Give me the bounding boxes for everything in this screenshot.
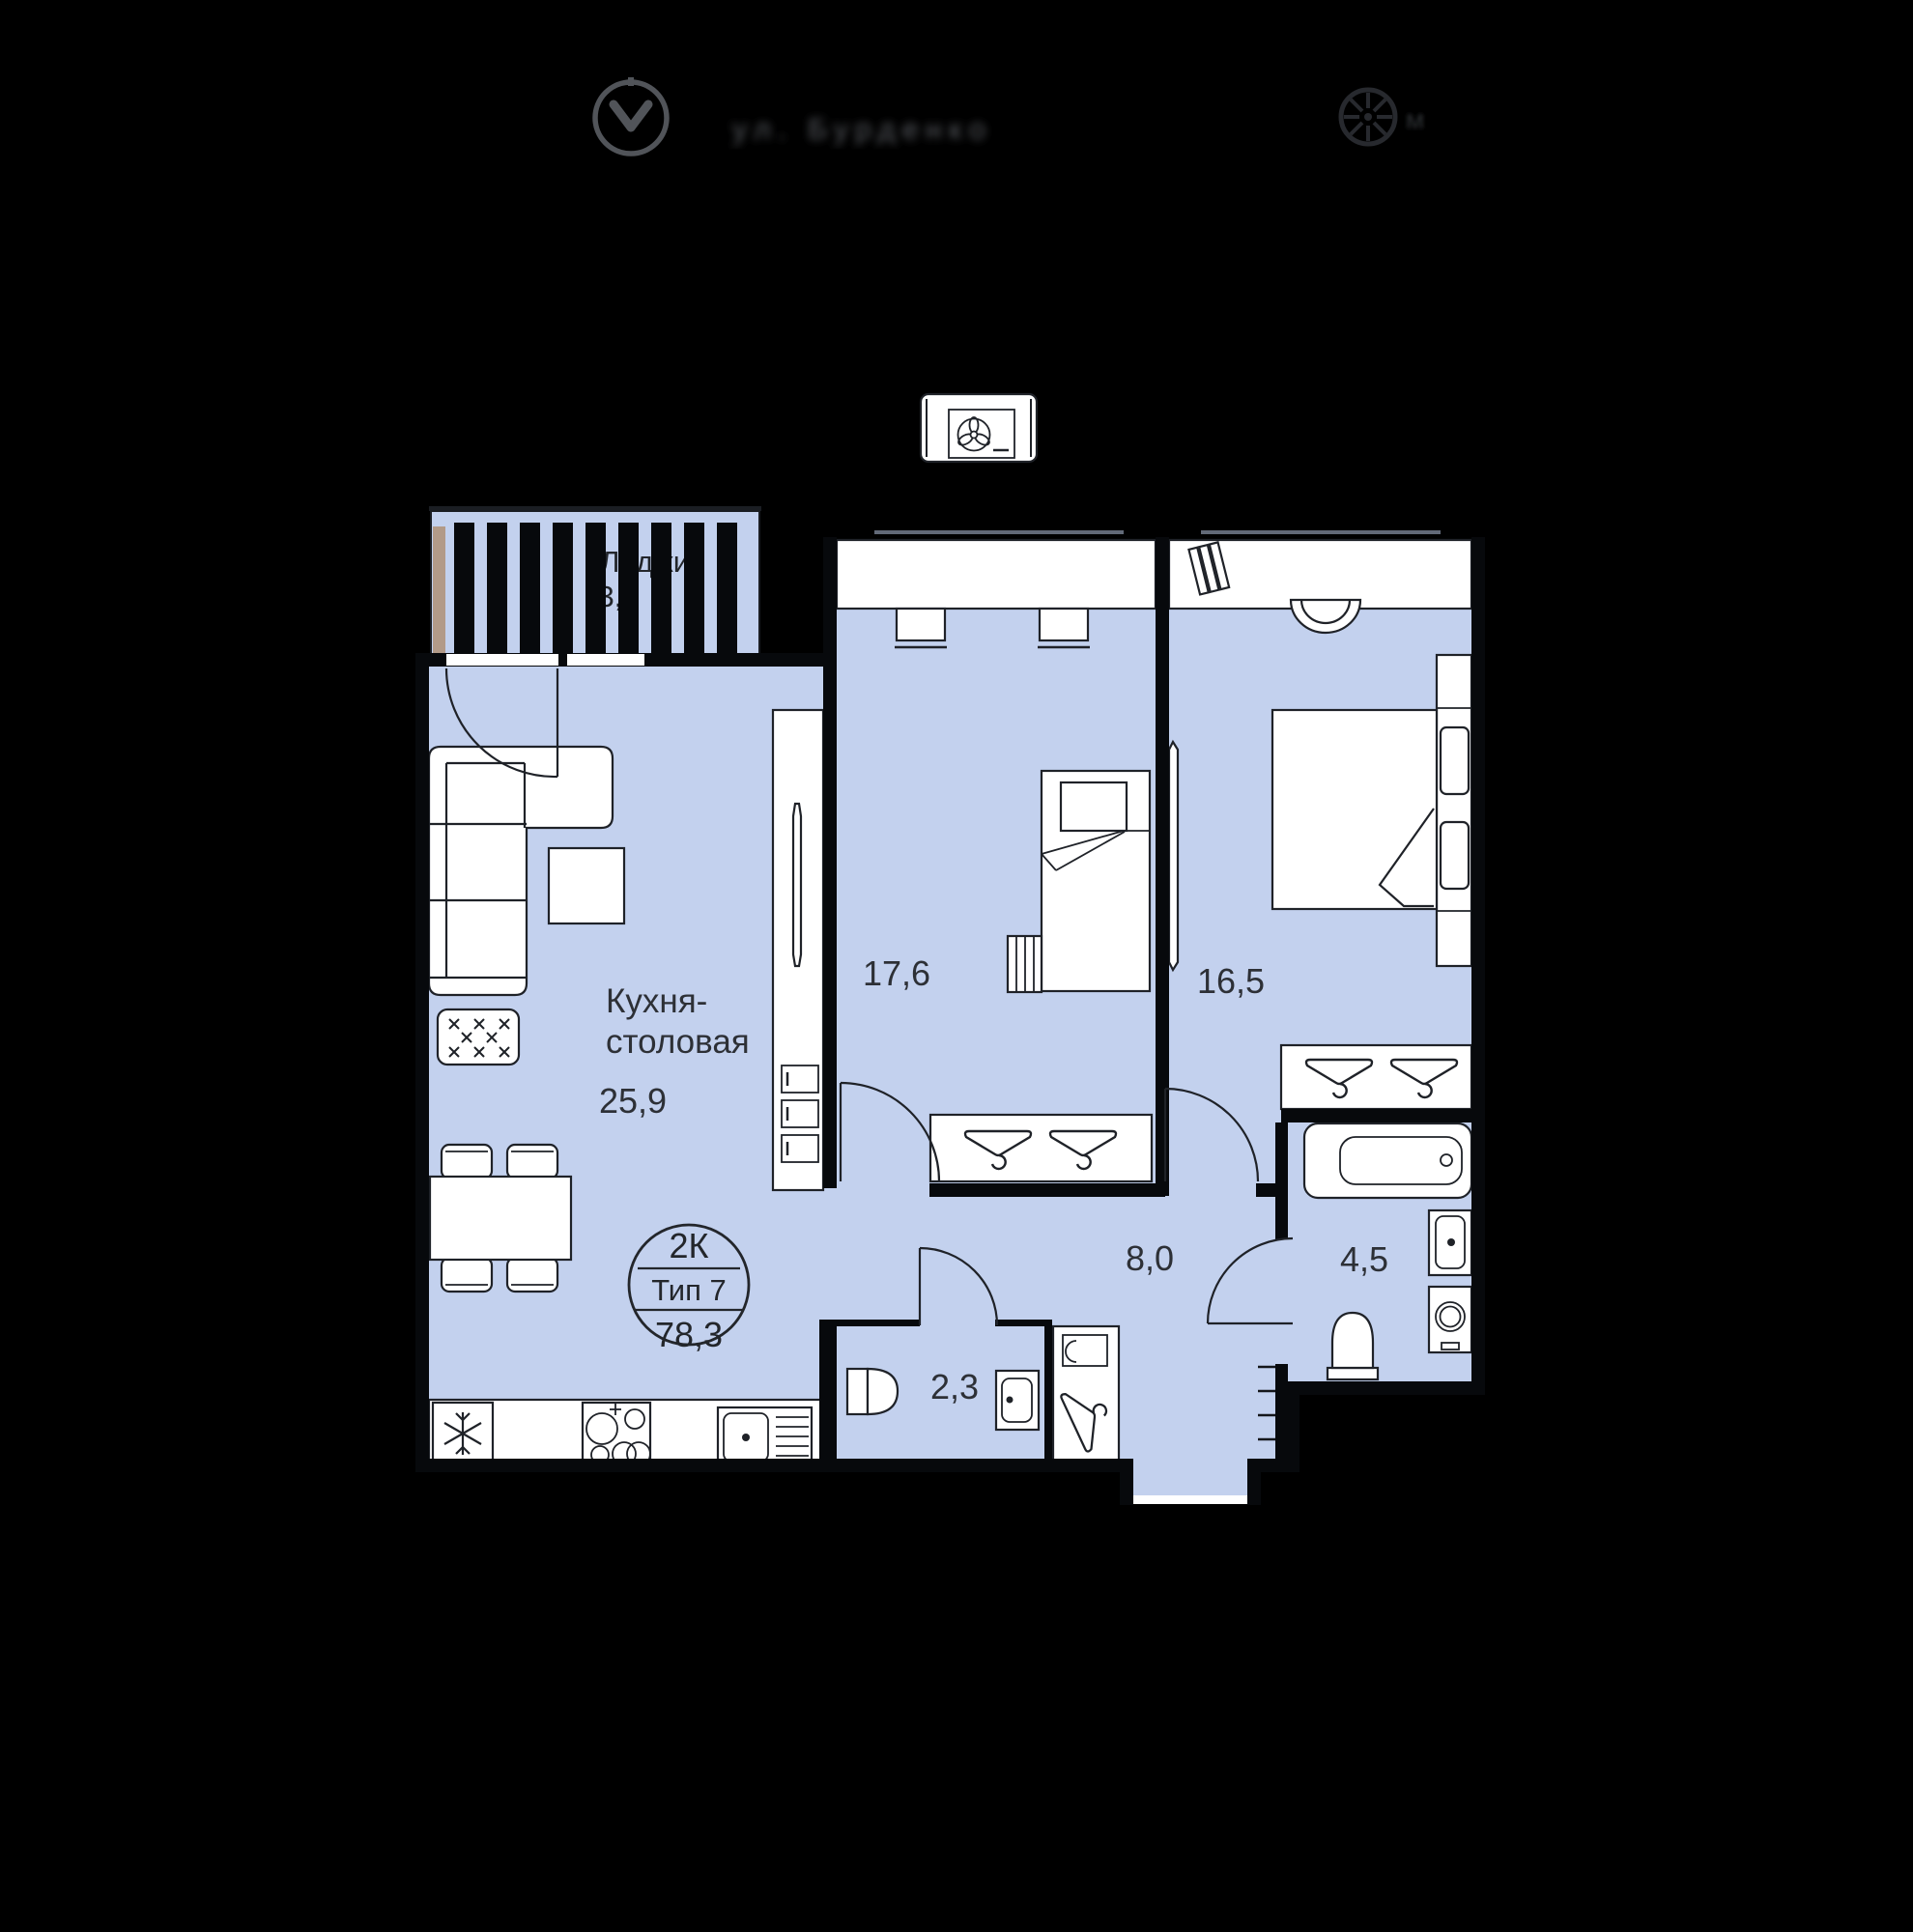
compass-rose-icon [1341, 90, 1395, 144]
chair [507, 1258, 557, 1292]
bathtub [1304, 1123, 1471, 1198]
wall-stub-1 [1156, 1183, 1165, 1197]
stove [583, 1403, 650, 1465]
balcony-door-gap [446, 654, 558, 666]
bed-headboard [1437, 655, 1471, 966]
entry [1133, 1459, 1247, 1504]
badge-type-label: Тип 7 [651, 1273, 727, 1307]
kitchen-window-gap [567, 654, 644, 666]
bedroom2-floor-ext [1169, 1109, 1281, 1196]
meters-unit-label: м [1406, 104, 1424, 134]
bedroom1-area-label: 17,6 [863, 953, 930, 993]
pillow [1441, 727, 1469, 794]
wall-kitchen-bedroom1 [823, 537, 837, 1188]
kitchen-label-line1: Кухня- [606, 982, 707, 1020]
header: ул. Бурденко м [595, 77, 1424, 154]
wall-wc-left [819, 1320, 837, 1472]
washing-machine [1429, 1287, 1471, 1352]
bedroom1-window-band [837, 540, 1156, 609]
wall-bedroom1-bedroom2 [1156, 537, 1169, 1196]
wardrobe-bedroom2 [1281, 1045, 1471, 1109]
entry-floor [1133, 1459, 1247, 1499]
wall-bath-bottom [1275, 1381, 1485, 1395]
wall-bath-left-upper [1275, 1122, 1288, 1239]
wc-sink [996, 1371, 1039, 1430]
wall-wc-top-1 [819, 1320, 920, 1326]
wall-wc-top-2 [995, 1320, 1051, 1326]
loggia-wood-strip [433, 526, 445, 654]
kitchen-area-label: 25,9 [599, 1081, 667, 1121]
hall-closet [1053, 1326, 1119, 1465]
pillow [1441, 822, 1469, 889]
kitchen-sink [718, 1407, 812, 1467]
wall-wc-right [1044, 1320, 1052, 1465]
coffee-table [549, 848, 624, 923]
rug [438, 1009, 519, 1065]
toilet-bathroom [1328, 1313, 1378, 1379]
badge-rooms-label: 2К [670, 1226, 709, 1265]
badge-area-label: 78,3 [655, 1315, 723, 1354]
wall-bedroom2-bottom [1281, 1109, 1485, 1122]
chair [442, 1258, 492, 1292]
kitchen-counter [429, 1400, 823, 1467]
chair [507, 1145, 557, 1179]
dining-table [430, 1177, 571, 1260]
facade-line-1 [874, 530, 1124, 534]
wardrobe-bedroom1 [930, 1115, 1152, 1181]
tall-cabinet [773, 710, 823, 1190]
window-tab-1 [897, 609, 945, 640]
entry-threshold [1133, 1495, 1247, 1504]
bathroom-sink [1429, 1210, 1471, 1275]
chair [442, 1145, 492, 1179]
wall-bottom-left [415, 1459, 1133, 1472]
loggia-hatching [454, 523, 737, 654]
window-tab-2 [1040, 609, 1088, 640]
loggia: Лоджия 3,6 [429, 506, 761, 656]
wall-left [415, 653, 429, 1472]
bathroom-area-label: 4,5 [1340, 1239, 1388, 1279]
bed-drawers [1008, 936, 1042, 992]
wall-entry-right [1247, 1459, 1261, 1505]
cabinet-handle [793, 804, 801, 966]
floorplan-canvas: ул. Бурденко м Лоджия 3,6 [0, 0, 1913, 1932]
wc-area-label: 2,3 [930, 1367, 979, 1406]
facade-line-2 [1201, 530, 1441, 534]
pillow [1061, 782, 1127, 831]
wall-bedroom1-bottom [929, 1183, 1156, 1197]
hallway-area-label: 8,0 [1126, 1238, 1174, 1278]
mattress [1272, 710, 1437, 909]
ac-unit [921, 394, 1037, 462]
developer-logo-icon [595, 77, 667, 154]
wall-entry-left [1120, 1459, 1133, 1505]
kitchen-label-line2: столовая [606, 1023, 750, 1061]
wall-right [1471, 537, 1485, 1395]
wall-step [1286, 1381, 1299, 1472]
street-name-label: ул. Бурденко [732, 112, 992, 146]
toilet-wc [847, 1369, 898, 1414]
bedroom2-area-label: 16,5 [1197, 961, 1265, 1001]
